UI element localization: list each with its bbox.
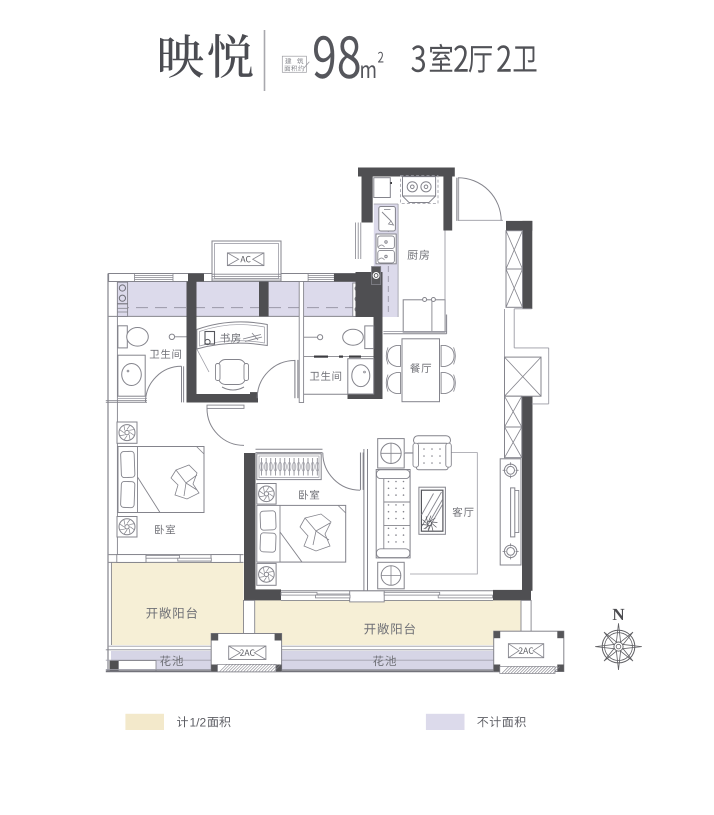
svg-text:1/2: 1/2	[190, 716, 207, 730]
